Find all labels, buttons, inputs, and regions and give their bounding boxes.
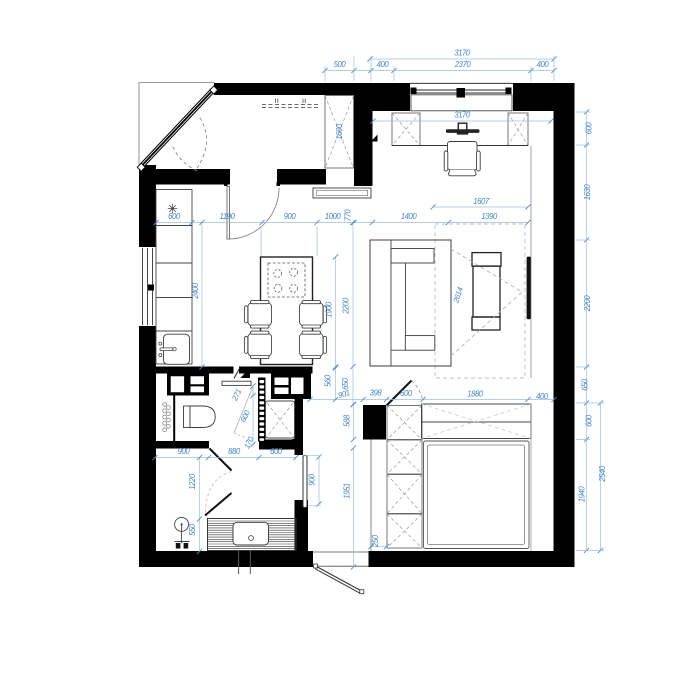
svg-text:1600: 1600 (335, 123, 344, 140)
svg-text:1880: 1880 (467, 390, 484, 399)
svg-text:500: 500 (334, 60, 347, 69)
svg-text:900: 900 (178, 447, 191, 456)
svg-text:1940: 1940 (578, 486, 587, 503)
svg-text:1000: 1000 (325, 212, 342, 221)
svg-text:560: 560 (324, 374, 333, 387)
svg-text:1900: 1900 (325, 301, 334, 318)
svg-text:2200: 2200 (342, 297, 351, 315)
svg-text:600: 600 (168, 212, 181, 221)
svg-text:3170: 3170 (454, 49, 471, 58)
svg-text:1400: 1400 (401, 212, 418, 221)
svg-text:900: 900 (284, 212, 297, 221)
svg-text:650: 650 (581, 378, 590, 391)
svg-text:770: 770 (344, 209, 353, 222)
svg-text:1390: 1390 (481, 212, 498, 221)
svg-text:1190: 1190 (220, 212, 236, 221)
svg-text:400: 400 (377, 60, 390, 69)
svg-text:250: 250 (371, 534, 380, 548)
svg-text:2540: 2540 (598, 465, 607, 483)
svg-text:1951: 1951 (343, 483, 352, 499)
svg-text:600: 600 (585, 414, 594, 427)
svg-text:2370: 2370 (454, 60, 472, 69)
svg-text:1630: 1630 (583, 184, 592, 201)
svg-text:550: 550 (188, 523, 197, 536)
svg-text:880: 880 (228, 447, 241, 456)
svg-text:588: 588 (343, 414, 352, 427)
svg-text:2400: 2400 (191, 282, 200, 300)
svg-text:400: 400 (536, 392, 549, 401)
svg-text:1220: 1220 (188, 473, 197, 490)
svg-text:650: 650 (341, 377, 350, 390)
svg-text:600: 600 (585, 122, 594, 135)
svg-text:900: 900 (308, 473, 317, 486)
svg-text:3170: 3170 (454, 111, 471, 120)
svg-text:398: 398 (370, 389, 383, 398)
svg-text:600: 600 (270, 447, 283, 456)
svg-text:2200: 2200 (583, 295, 592, 313)
svg-text:1607: 1607 (473, 197, 490, 206)
svg-text:400: 400 (537, 60, 550, 69)
svg-text:600: 600 (400, 389, 413, 398)
